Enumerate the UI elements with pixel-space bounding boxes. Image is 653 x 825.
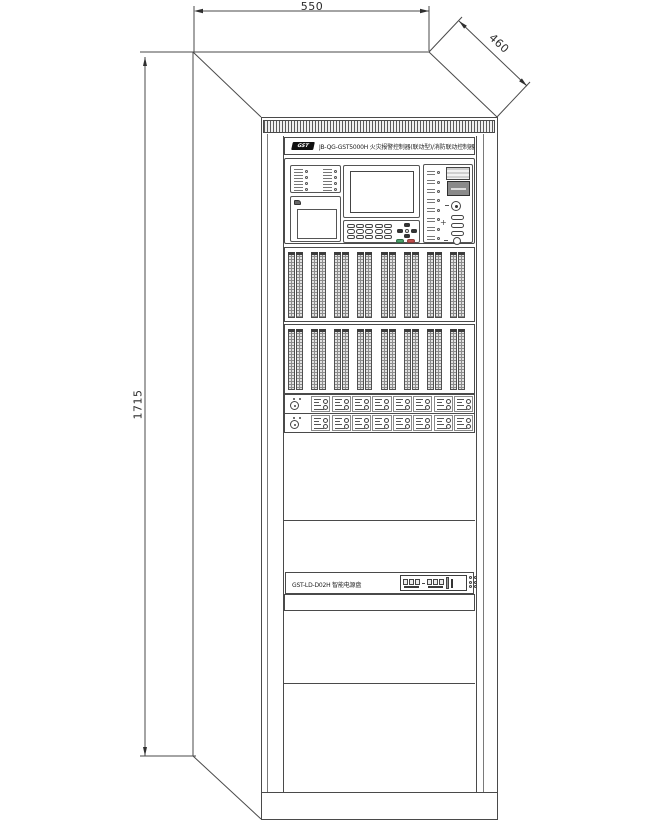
oval-button-1 [451, 215, 464, 220]
terminal-module [380, 328, 403, 390]
keypad-key [347, 224, 355, 229]
loop-module [332, 415, 351, 431]
loop-module [332, 396, 351, 412]
power-unit-label: GST-LD-D02H 智能电源盘 [292, 580, 361, 589]
hand-symbol-icon [294, 200, 301, 205]
terminal-bank-1 [284, 247, 475, 322]
terminal-module [426, 328, 449, 390]
module-led [364, 405, 369, 410]
right-led-item [427, 177, 440, 186]
led-indicator [334, 176, 337, 179]
right-control-panel: + [423, 164, 473, 243]
module-led [344, 424, 349, 429]
terminal-strip [381, 252, 388, 318]
panel-divider [284, 520, 475, 521]
module-led [466, 405, 471, 410]
led-indicator [437, 190, 440, 193]
keypad-key [365, 229, 373, 234]
vent-grille [263, 120, 495, 133]
sounder-icon [290, 420, 299, 429]
loop-module [413, 415, 432, 431]
loop-module [352, 396, 371, 412]
led-indicator [334, 188, 337, 191]
led-dot [293, 417, 295, 419]
lcd-screen [350, 171, 414, 213]
module-led [466, 418, 471, 423]
printer-paper-slot [446, 167, 470, 180]
led-dot [293, 398, 295, 400]
module-led [323, 424, 328, 429]
panel-divider [284, 683, 475, 684]
loop-module [311, 415, 330, 431]
terminal-strip [458, 329, 465, 390]
oval-button-2 [451, 223, 464, 228]
terminal-module [426, 251, 449, 318]
module-led [364, 424, 369, 429]
terminal-module [333, 328, 356, 390]
led-label [323, 181, 332, 185]
terminal-module [310, 328, 333, 390]
loop-module [372, 415, 391, 431]
terminal-strip [365, 252, 372, 318]
keypad-key [356, 229, 364, 234]
power-display-backup [427, 579, 444, 588]
module-led [466, 424, 471, 429]
fire-display-panel [290, 196, 341, 242]
module-led [425, 418, 430, 423]
power-indicator-panel [400, 575, 467, 591]
keypad-key [384, 235, 392, 240]
terminal-strip [381, 329, 388, 390]
terminal-strip [311, 252, 318, 318]
loop-module [393, 396, 412, 412]
terminal-strip [427, 252, 434, 318]
module-led [344, 399, 349, 404]
module-led [405, 418, 410, 423]
led-dot [299, 417, 301, 419]
led-indicator [437, 228, 440, 231]
cabinet-base [261, 792, 498, 820]
numeric-keys [347, 224, 392, 240]
terminal-strip [389, 252, 396, 318]
keypad [343, 220, 420, 243]
module-led [446, 424, 451, 429]
module-led [323, 399, 328, 404]
terminal-strip [450, 329, 457, 390]
led-label [427, 171, 435, 175]
module-led [405, 405, 410, 410]
module-led [364, 399, 369, 404]
dimension-top-width: 550 [290, 0, 334, 13]
keypad-key [375, 224, 383, 229]
status-led-item [323, 169, 337, 173]
status-led-item [323, 181, 337, 185]
led-indicator [305, 170, 308, 173]
led-indicator [305, 176, 308, 179]
module-led [405, 399, 410, 404]
knob-label-tick [445, 205, 449, 206]
module-led [425, 424, 430, 429]
plus-mark-icon: + [440, 219, 447, 227]
led-indicator [437, 171, 440, 174]
control-panel: + [284, 158, 475, 244]
terminal-strip [357, 329, 364, 390]
led-label [427, 180, 435, 184]
lcd-bezel [343, 165, 420, 218]
module-led [364, 418, 369, 423]
terminal-module [380, 251, 403, 318]
right-led-item [427, 206, 440, 215]
module-led [323, 405, 328, 410]
cabinet-elevation-drawing: 550 460 1715 GST JB-QG-GST5000H 火灾报警控制器(… [0, 0, 653, 825]
nameplate: GST JB-QG-GST5000H 火灾报警控制器(联动型)/消防联动控制器 [284, 137, 475, 155]
terminal-strip [288, 329, 295, 390]
arrow-up-key [404, 223, 410, 227]
terminal-module [287, 328, 310, 390]
terminal-strip [412, 329, 419, 390]
led-label [427, 227, 435, 231]
module-led [384, 405, 389, 410]
right-led-item [427, 168, 440, 177]
right-led-item [427, 224, 440, 233]
terminal-module [287, 251, 310, 318]
led-label [427, 199, 435, 203]
arrow-right-key [411, 229, 417, 233]
terminal-strip [334, 329, 341, 390]
module-led [384, 424, 389, 429]
loop-module [372, 396, 391, 412]
terminal-strip [404, 252, 411, 318]
door-frame-line-left [267, 134, 268, 792]
loop-module [454, 415, 473, 431]
status-led-item [294, 187, 308, 191]
keypad-key [375, 235, 383, 240]
loop-module [393, 415, 412, 431]
oval-button-3 [451, 231, 464, 236]
keypad-key [365, 224, 373, 229]
led-label [323, 175, 332, 179]
terminal-strip [450, 252, 457, 318]
confirm-key [396, 239, 404, 243]
keypad-key [356, 235, 364, 240]
terminal-strip [458, 252, 465, 318]
power-display-main [403, 579, 420, 588]
loop-module [434, 415, 453, 431]
fire-display-window [297, 209, 337, 239]
led-indicator [334, 170, 337, 173]
right-led-column [427, 168, 440, 243]
led-indicator [305, 188, 308, 191]
terminal-strip [404, 329, 411, 390]
right-led-item [427, 215, 440, 224]
module-led [466, 399, 471, 404]
door-frame-line-right [483, 134, 484, 792]
terminal-strip [365, 329, 372, 390]
keypad-key [384, 229, 392, 234]
status-led-item [323, 175, 337, 179]
loop-module [311, 396, 330, 412]
terminal-strip [435, 329, 442, 390]
led-dot [299, 398, 301, 400]
terminal-module [356, 251, 379, 318]
keypad-key [365, 235, 373, 240]
module-led [446, 405, 451, 410]
module-led [446, 418, 451, 423]
led-label [427, 236, 435, 240]
status-led-item [323, 187, 337, 191]
terminal-strip [296, 252, 303, 318]
loop-module [454, 396, 473, 412]
round-button [453, 237, 461, 245]
keypad-key [356, 224, 364, 229]
led-indicator [437, 237, 440, 240]
module-led [405, 424, 410, 429]
right-led-item [427, 187, 440, 196]
terminal-strip [288, 252, 295, 318]
led-label [323, 187, 332, 191]
status-led-row [292, 186, 339, 192]
knob-center-dot [455, 205, 458, 208]
module-led [425, 399, 430, 404]
terminal-module [403, 251, 426, 318]
terminal-strip [435, 252, 442, 318]
module-led [425, 405, 430, 410]
blank-band [284, 594, 475, 611]
terminal-strip [319, 252, 326, 318]
led-label [427, 189, 435, 193]
led-indicator [437, 199, 440, 202]
dimension-height: 1715 [132, 383, 145, 427]
arrow-left-key [397, 229, 403, 233]
module-row-2 [284, 413, 475, 433]
terminal-module [356, 328, 379, 390]
power-supply-unit: GST-LD-D02H 智能电源盘 [285, 572, 474, 594]
status-led-panel [290, 165, 341, 193]
module-led [323, 418, 328, 423]
keypad-key [347, 235, 355, 240]
sounder-module [286, 396, 310, 412]
loop-module [413, 396, 432, 412]
led-label [427, 218, 435, 222]
terminal-module [403, 328, 426, 390]
sounder-icon [290, 401, 299, 410]
status-led-item [294, 169, 308, 173]
right-led-item [427, 196, 440, 205]
printer-body [447, 181, 470, 196]
terminal-strip [342, 252, 349, 318]
button-label-tick [444, 240, 448, 241]
keypad-key [347, 229, 355, 234]
status-led-item [294, 181, 308, 185]
led-label [323, 169, 332, 173]
led-label [294, 175, 303, 179]
terminal-module [449, 328, 472, 390]
terminal-strip [296, 329, 303, 390]
indicator-bar [451, 579, 453, 588]
led-indicator [334, 182, 337, 185]
terminal-bank-2 [284, 324, 475, 394]
dpad-center-key [405, 229, 409, 233]
keypad-key [375, 229, 383, 234]
led-indicator [305, 182, 308, 185]
loop-module [434, 396, 453, 412]
brand-logo: GST [291, 142, 315, 150]
terminal-strip [334, 252, 341, 318]
terminal-module [333, 251, 356, 318]
led-indicator [437, 209, 440, 212]
module-led [344, 418, 349, 423]
module-led [344, 405, 349, 410]
product-title: JB-QG-GST5000H 火灾报警控制器(联动型)/消防联动控制器 [319, 142, 474, 151]
terminal-module [449, 251, 472, 318]
status-led-item [294, 175, 308, 179]
led-label [294, 169, 303, 173]
terminal-strip [357, 252, 364, 318]
sounder-module [286, 415, 310, 431]
terminal-strip [319, 329, 326, 390]
loop-module [352, 415, 371, 431]
terminal-strip [389, 329, 396, 390]
led-indicator [437, 181, 440, 184]
right-led-item [427, 234, 440, 243]
module-row-1 [284, 394, 475, 414]
arrow-down-key [404, 234, 410, 238]
terminal-strip [342, 329, 349, 390]
keypad-key [384, 224, 392, 229]
terminal-module [310, 251, 333, 318]
led-label [294, 187, 303, 191]
module-led [384, 418, 389, 423]
terminal-strip [427, 329, 434, 390]
terminal-strip [412, 252, 419, 318]
led-label [294, 181, 303, 185]
module-led [446, 399, 451, 404]
terminal-strip [311, 329, 318, 390]
dash-mark [422, 583, 425, 584]
module-led [384, 399, 389, 404]
terminal-block [469, 576, 477, 588]
cancel-key [407, 239, 415, 243]
power-switch [446, 577, 449, 589]
led-label [427, 208, 435, 212]
